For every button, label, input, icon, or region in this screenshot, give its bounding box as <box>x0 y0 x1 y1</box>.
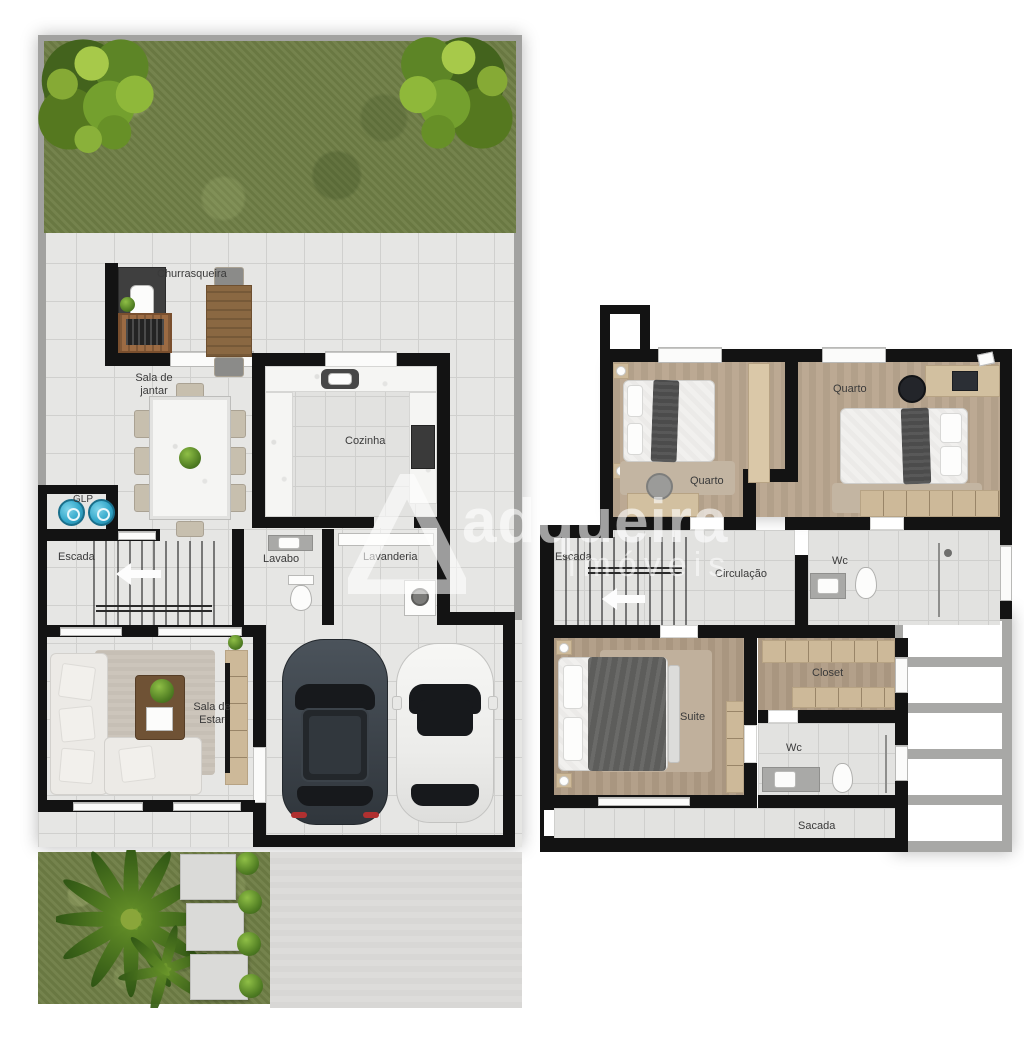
bed-bench-icon <box>668 665 680 763</box>
door-opening <box>253 747 266 803</box>
wall <box>744 625 895 638</box>
outdoor-chair-icon <box>214 357 244 377</box>
front-yard <box>38 852 522 1010</box>
dining-chair-icon <box>176 521 204 537</box>
plant-icon <box>120 297 135 312</box>
window <box>895 657 908 693</box>
arrow-left-icon <box>116 563 131 585</box>
dining-chair-icon <box>228 484 246 512</box>
stepping-stones-icon <box>180 854 236 900</box>
sofa-cushion <box>58 663 96 701</box>
window <box>118 531 156 540</box>
watermark-subtitle: imóveis <box>568 546 732 585</box>
sofa-cushion <box>118 745 156 783</box>
sofa-cushion <box>58 705 95 742</box>
tv-panel-icon <box>726 701 744 793</box>
sofa-cushion <box>59 748 96 785</box>
bush-icon <box>236 852 259 875</box>
grill-grate-icon <box>126 319 164 345</box>
balcony-floor <box>554 808 895 838</box>
wall <box>744 638 757 795</box>
wardrobe-icon <box>748 363 770 483</box>
room-label-suite: Suite <box>680 711 705 724</box>
window <box>1000 545 1012 601</box>
car-dark-icon <box>282 639 388 825</box>
pillow <box>563 665 583 709</box>
arrow-left-icon <box>131 570 161 578</box>
closet-shelves-icon <box>792 687 895 708</box>
wall <box>252 353 265 521</box>
bush-icon <box>238 890 262 914</box>
wall <box>540 838 908 852</box>
lamp-icon <box>559 643 569 653</box>
shower-glass <box>938 543 940 617</box>
closet-shelves-icon <box>762 640 895 663</box>
window <box>598 797 690 806</box>
stair-rail <box>96 605 212 607</box>
room-label-wc-2: Wc <box>786 742 802 755</box>
triangle-a-logo <box>348 474 466 594</box>
outdoor-table-icon <box>206 285 252 357</box>
stepping-stones-icon <box>190 954 248 1000</box>
pillow <box>940 446 962 476</box>
washbasin-icon <box>278 537 300 549</box>
centerpiece-plant-icon <box>179 447 201 469</box>
room-label-closet: Closet <box>812 667 843 680</box>
window <box>158 627 242 636</box>
room-label-cozinha: Cozinha <box>345 435 385 448</box>
window <box>60 627 122 636</box>
wall <box>795 555 808 625</box>
arrow-left-icon <box>617 595 645 603</box>
wall <box>42 485 108 494</box>
laptop-icon <box>952 371 978 391</box>
toilet-icon <box>832 763 853 793</box>
wall <box>554 625 744 638</box>
room-label-sala-estar: Sala de Estar <box>186 701 238 727</box>
wall <box>503 620 515 847</box>
bush-icon <box>237 932 261 956</box>
toilet-tank <box>288 575 314 585</box>
wall <box>105 263 118 358</box>
window <box>658 347 722 363</box>
plant-icon <box>150 679 174 703</box>
room-label-churrasqueira: Churrasqueira <box>157 268 227 281</box>
pergola-roof <box>893 611 1012 852</box>
tree-icon <box>360 27 530 179</box>
pillow <box>563 717 583 761</box>
dining-chair-icon <box>228 447 246 475</box>
window <box>822 347 886 363</box>
duct-opening <box>610 314 640 350</box>
room-label-glp: GLP <box>73 494 93 506</box>
bush-icon <box>239 974 263 998</box>
wall <box>105 353 450 366</box>
window <box>173 802 241 811</box>
driveway <box>270 852 522 1008</box>
lamp-icon <box>559 776 569 786</box>
room-label-escada: Escada <box>58 551 95 564</box>
bed-throw <box>901 408 932 485</box>
door-opening <box>744 725 757 763</box>
pillow <box>627 385 643 417</box>
garage-door-line <box>253 835 515 847</box>
wall <box>322 529 334 625</box>
duct-opening <box>544 810 554 836</box>
desk-chair-icon <box>898 375 926 403</box>
pillow <box>940 413 962 443</box>
window <box>73 802 143 811</box>
toilet-icon <box>290 585 312 611</box>
room-label-lavabo: Lavabo <box>263 553 299 566</box>
tray <box>146 707 173 731</box>
toilet-icon <box>855 567 877 599</box>
wardrobe-icon <box>860 490 1000 517</box>
shower-glass <box>885 735 887 793</box>
wall <box>253 625 266 847</box>
stair-rail <box>96 610 212 612</box>
window <box>325 351 397 367</box>
dining-chair-icon <box>228 410 246 438</box>
room-label-sala-jantar: Sala de jantar <box>128 372 180 398</box>
ground-floor-plan: Churrasqueira Sala de jantar Cozinha GLP… <box>38 35 522 847</box>
bed-throw <box>651 380 680 463</box>
plant-icon <box>228 635 243 650</box>
pillow <box>627 423 643 455</box>
door-opening <box>870 517 904 530</box>
car-white-icon <box>396 643 494 823</box>
shower-head-icon <box>944 549 952 557</box>
oven-icon <box>411 425 435 469</box>
lamp-icon <box>616 366 626 376</box>
floor-plan-canvas: Churrasqueira Sala de jantar Cozinha GLP… <box>0 0 1024 1055</box>
tree-icon <box>30 29 205 184</box>
wall <box>232 529 244 625</box>
room-label-sacada: Sacada <box>798 820 835 833</box>
washbasin-icon <box>817 578 839 594</box>
room-label-wc-1: Wc <box>832 555 848 568</box>
kitchen-counter <box>265 392 293 517</box>
stepping-stones-icon <box>186 903 244 951</box>
room-label-quarto-2: Quarto <box>833 383 867 396</box>
wall <box>758 795 895 808</box>
washbasin-icon <box>774 771 796 788</box>
wall <box>785 349 798 469</box>
stairs-icon <box>93 541 215 625</box>
arrow-left-icon <box>602 588 617 610</box>
door-opening <box>660 625 698 638</box>
sink-basin <box>328 373 352 385</box>
window <box>895 745 908 781</box>
door-opening <box>768 710 798 723</box>
duvet <box>588 657 666 771</box>
